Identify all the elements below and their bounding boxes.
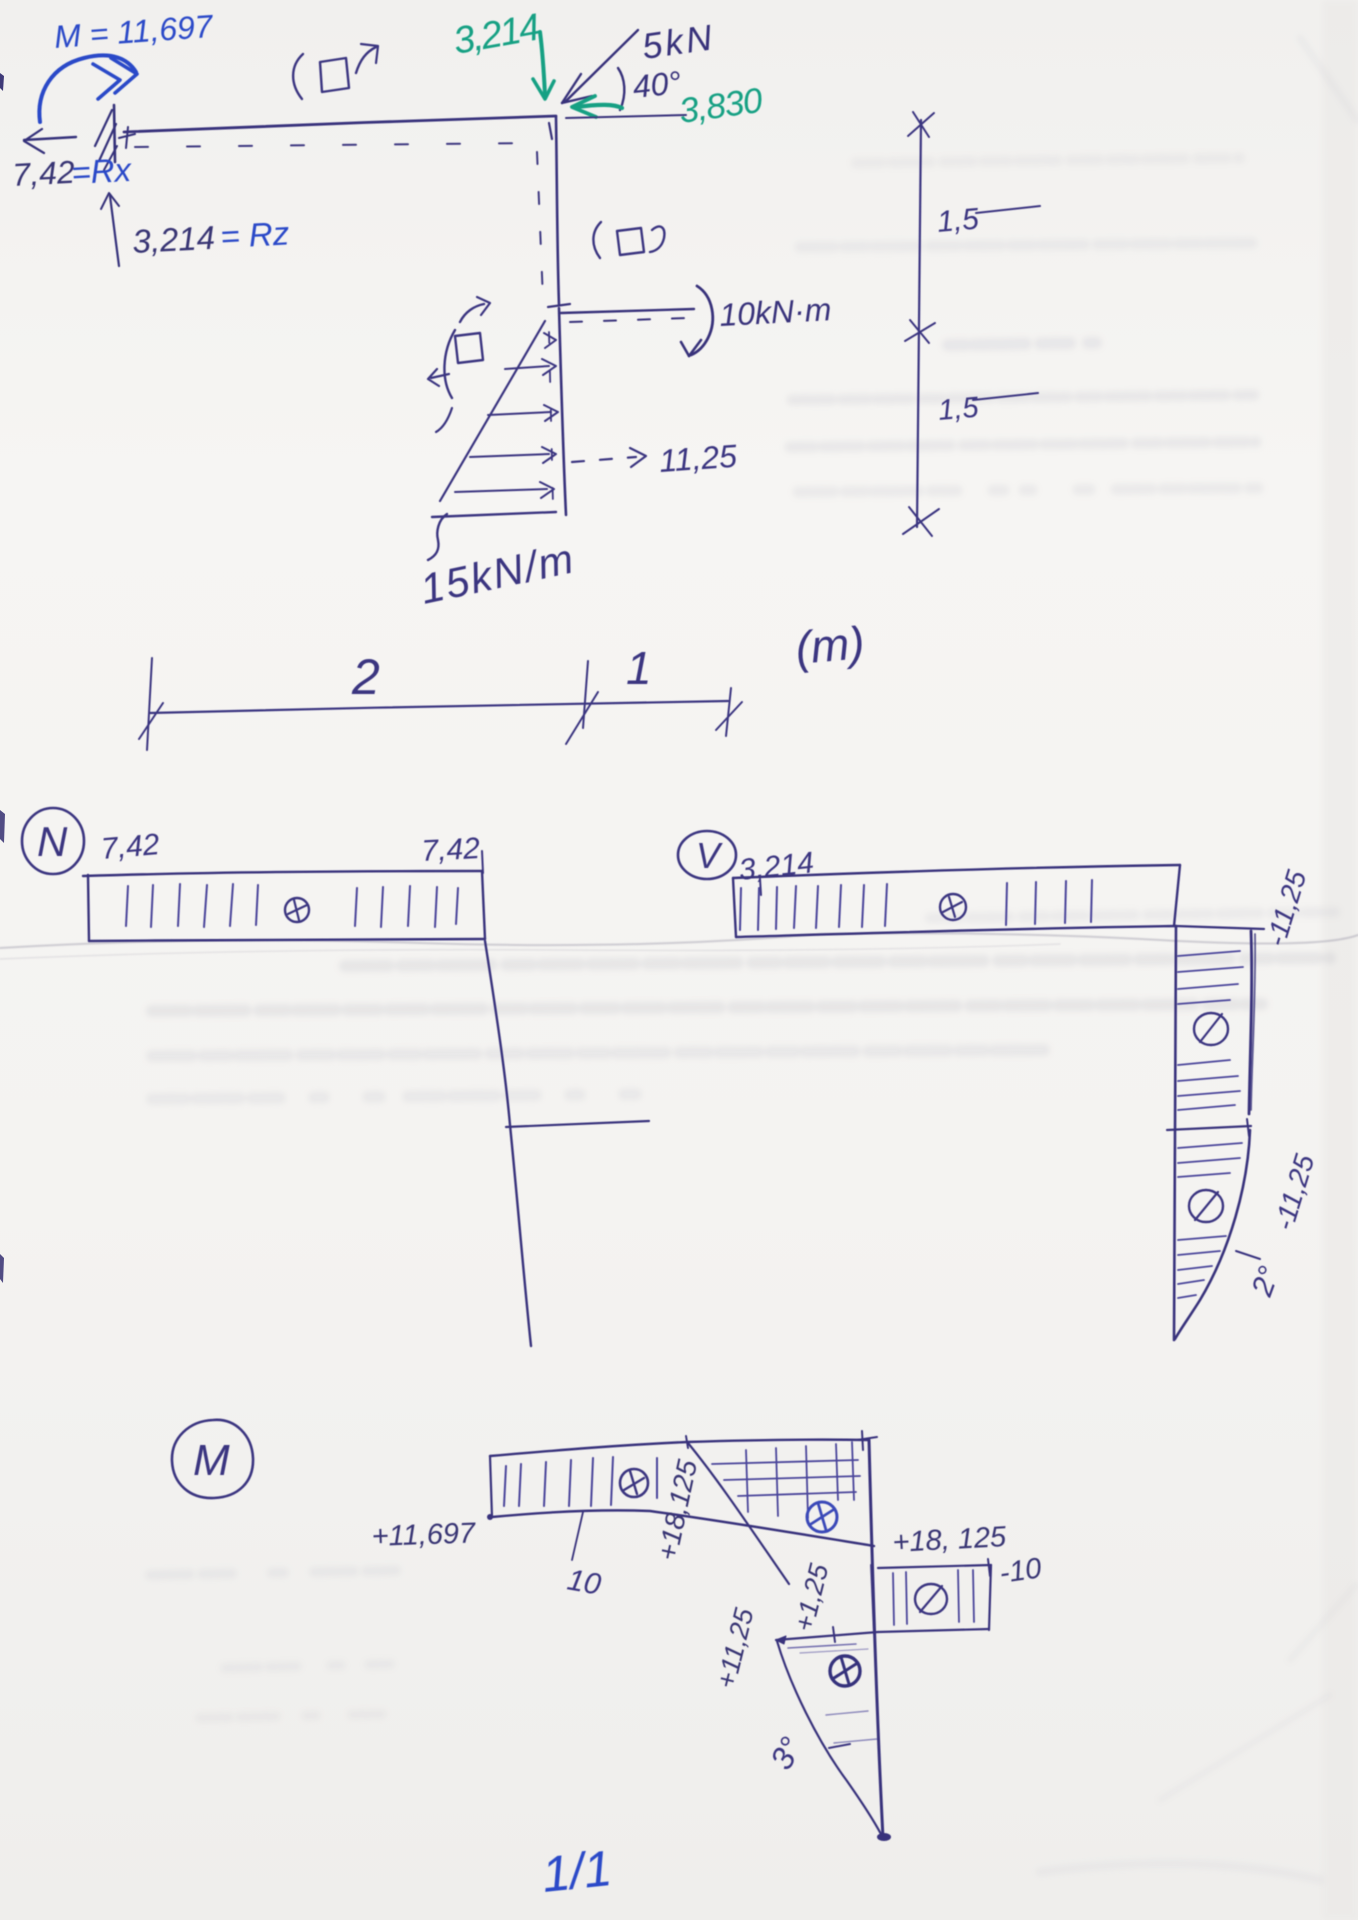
svg-text:3,214: 3,214 [131,219,215,260]
svg-text:11,25: 11,25 [658,438,738,479]
svg-text:-10: -10 [998,1552,1044,1590]
svg-text:10: 10 [565,1563,604,1601]
svg-text:+18, 125: +18, 125 [892,1521,1008,1559]
svg-text:=Rx: =Rx [70,151,133,191]
svg-text:V: V [696,835,723,876]
svg-text:N: N [37,818,68,865]
svg-text:1: 1 [626,642,652,694]
svg-text:10kN·m: 10kN·m [718,291,832,333]
svg-text:7,42: 7,42 [11,154,75,193]
svg-text:2: 2 [351,649,380,705]
svg-text:= Rz: = Rz [219,214,290,255]
svg-text:M: M [193,1436,230,1485]
svg-text:1/1: 1/1 [539,1840,614,1903]
svg-text:7,42: 7,42 [421,832,481,868]
svg-text:1,5: 1,5 [937,392,981,427]
svg-text:40°: 40° [631,64,683,105]
svg-text:1,5: 1,5 [936,202,981,239]
svg-text:(m): (m) [793,616,866,674]
svg-text:+11,697: +11,697 [371,1517,477,1553]
svg-text:7,42: 7,42 [100,828,161,866]
